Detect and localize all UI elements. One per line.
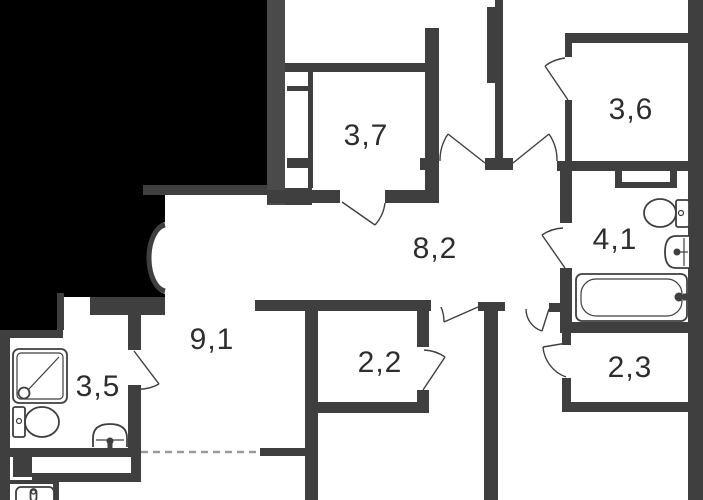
room-label-3-7: 3,7 [344, 119, 389, 152]
washbasin-icon [93, 424, 127, 448]
vent-shaft-wall [615, 182, 677, 188]
room-label-3-5: 3,5 [76, 370, 121, 403]
wall-segment [57, 293, 64, 330]
wall-segment [0, 448, 141, 457]
door-shower-room-3-5 [134, 351, 159, 389]
door-entry-left [440, 134, 485, 163]
wall-segment [495, 83, 503, 168]
wall-segment [417, 311, 429, 347]
door-room-2-2 [423, 350, 445, 390]
bathtub-icon [576, 274, 689, 321]
wall-segment [131, 448, 141, 482]
shower-cabin-icon [13, 349, 67, 403]
wall-segment [560, 322, 703, 333]
room-label-2-2: 2,2 [358, 346, 403, 379]
wall-segment [487, 7, 503, 83]
room-label-3-6: 3,6 [609, 93, 654, 126]
wall-segment [10, 480, 59, 484]
washbasin-icon [16, 487, 54, 500]
wall-segment [565, 43, 572, 57]
floor-plan: 3,7 3,6 8,2 4,1 9,1 2,2 2,3 3,5 [0, 0, 703, 500]
wall-segment [485, 158, 513, 170]
toilet-icon [644, 199, 689, 227]
room-label-2-3: 2,3 [608, 351, 653, 384]
outer-wall [688, 0, 703, 500]
wall-segment [560, 171, 572, 223]
room-label-9-1: 9,1 [190, 323, 235, 356]
washbasin-icon [665, 236, 689, 268]
door-room-2-3 [543, 343, 567, 377]
wall-segment [425, 28, 439, 203]
wall-segment [310, 402, 429, 413]
wall-segment [90, 297, 165, 315]
wardrobe-frame [285, 63, 312, 72]
wall-segment [128, 315, 141, 350]
wall-segment [128, 385, 141, 448]
wall-segment [565, 100, 572, 168]
floor-plan-canvas: 3,7 3,6 8,2 4,1 9,1 2,2 2,3 3,5 [0, 0, 703, 500]
door-room-3-7 [342, 202, 385, 225]
toilet-icon [13, 407, 59, 437]
room-label-4-1: 4,1 [593, 223, 638, 256]
wardrobe-frame [308, 72, 313, 188]
wall-segment [312, 63, 425, 72]
outer-wall [0, 330, 10, 500]
wall-segment [267, 190, 340, 203]
door-entry-right [513, 134, 557, 163]
wall-segment [484, 302, 498, 500]
redaction-mask [0, 185, 165, 297]
wall-segment [565, 33, 688, 43]
door-hall [441, 307, 478, 322]
wall-segment [260, 448, 305, 456]
wall-segment [267, 0, 285, 205]
door-bathroom-4-1 [542, 228, 565, 268]
wall-segment [557, 161, 688, 171]
wardrobe-shelf [287, 158, 308, 168]
wardrobe-shelf [287, 86, 308, 91]
wall-segment [562, 402, 688, 412]
wall-segment [549, 303, 560, 312]
door-hall-small [526, 309, 549, 331]
redaction-mask [0, 297, 60, 330]
door-room-3-6 [545, 58, 568, 100]
redacted-area [0, 0, 267, 330]
wall-segment [13, 457, 32, 477]
wall-segment [420, 158, 439, 170]
room-label-8-2: 8,2 [413, 232, 458, 265]
wall-segment [143, 185, 267, 195]
redaction-mask [0, 0, 267, 185]
wall-segment [385, 190, 425, 203]
wall-segment [255, 300, 431, 311]
